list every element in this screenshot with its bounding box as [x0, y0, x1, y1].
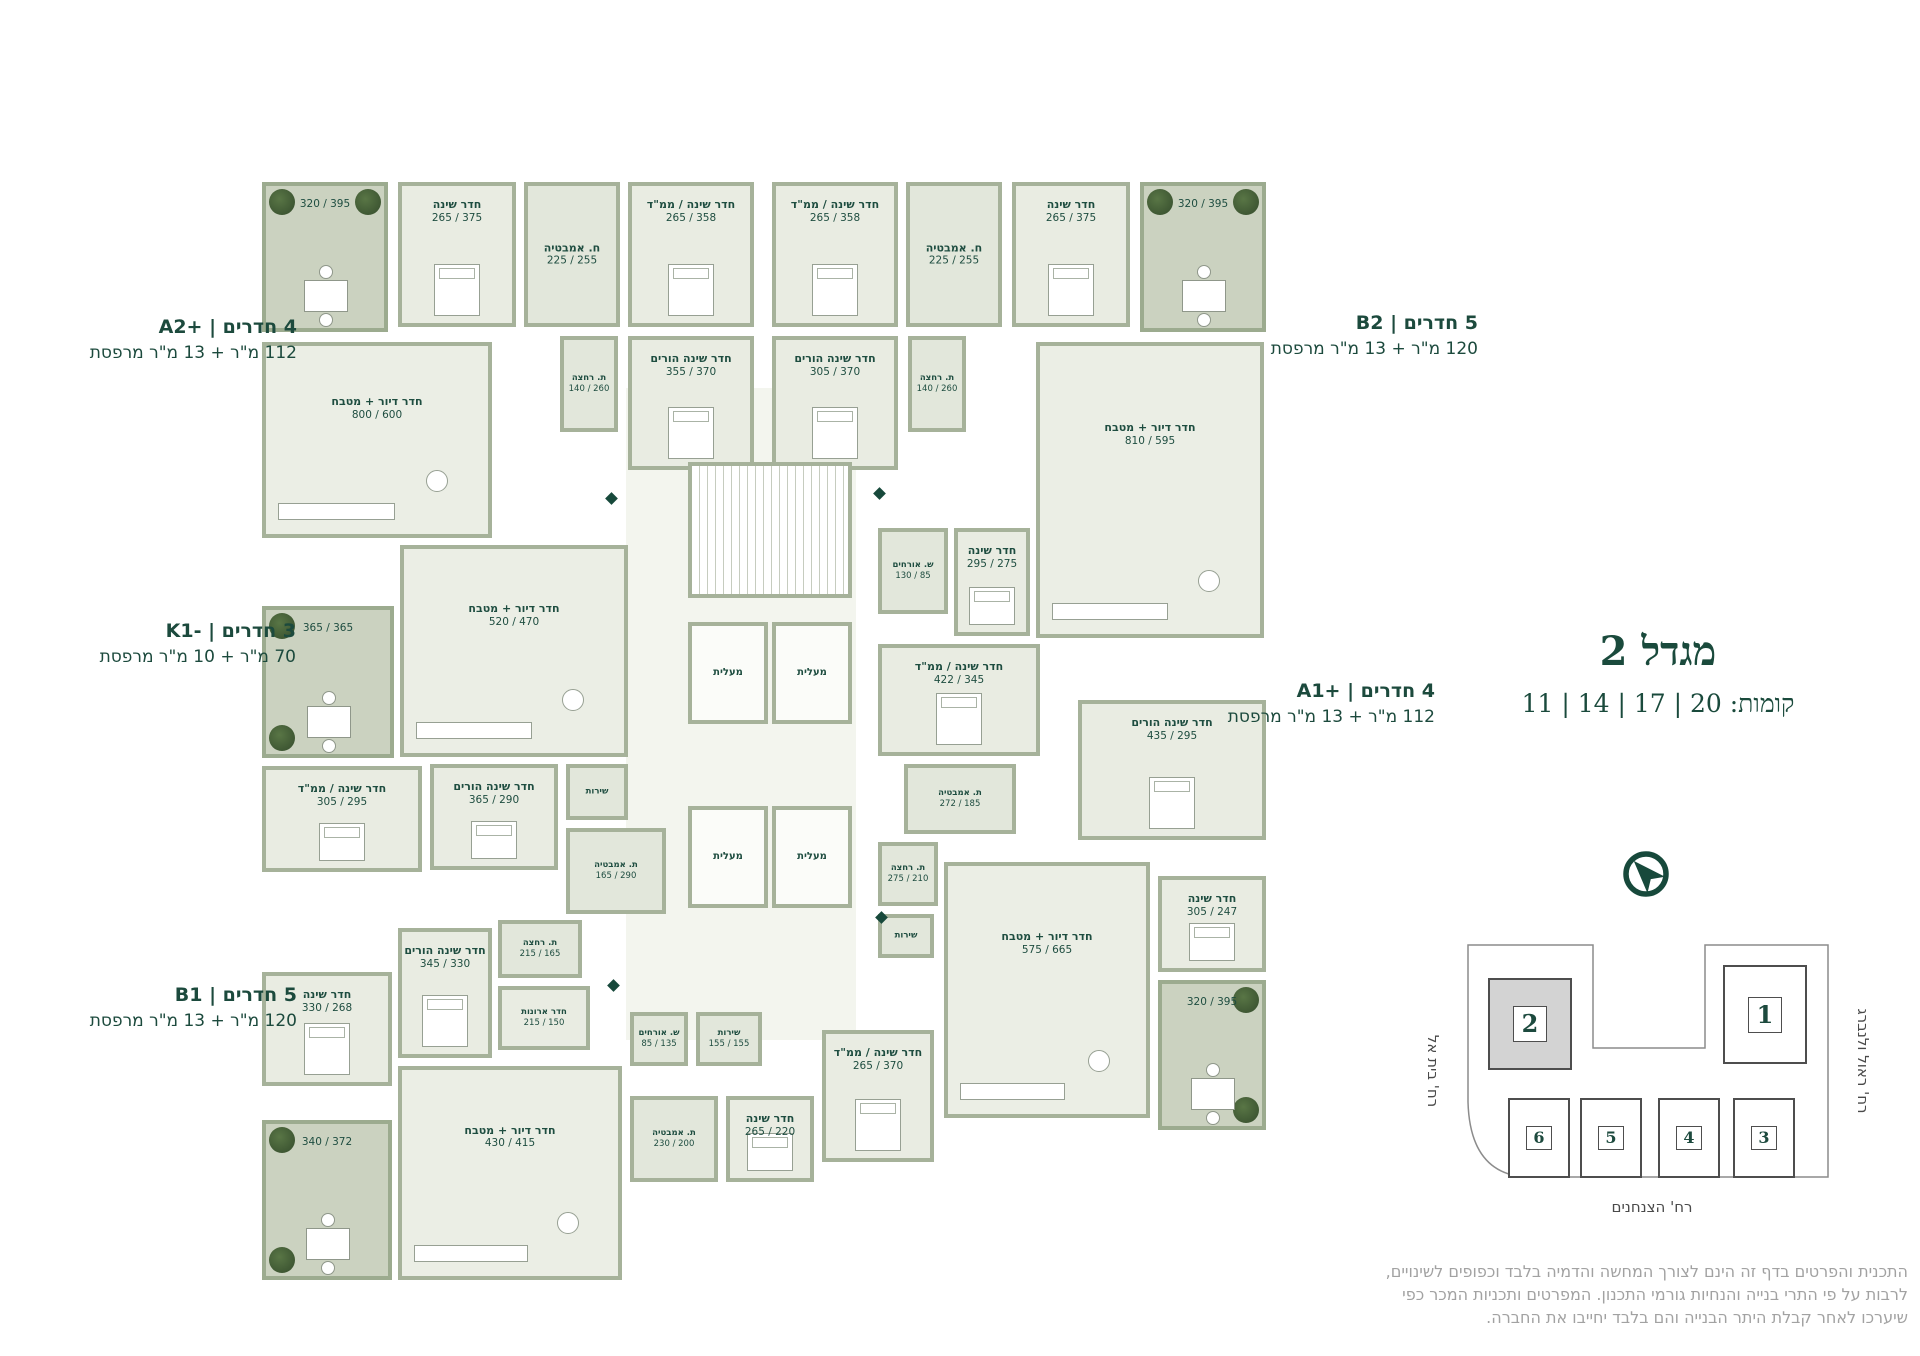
room-dims: 215 / 150	[502, 1018, 586, 1029]
building-number: 6	[1526, 1126, 1551, 1150]
building-number: 2	[1513, 1006, 1548, 1042]
apartment-area-label: 70 מ"ר + 10 מ"ר מרפסת	[100, 647, 296, 667]
room-name: ת. אמבטיה	[908, 788, 1012, 799]
room-elevator: מעלית	[688, 622, 768, 724]
room-bath: שירות	[878, 914, 934, 958]
room-name: מעלית	[692, 667, 764, 680]
room-name: ת. אמבטיה	[634, 1128, 714, 1139]
room-name: חדר שינה	[1162, 892, 1262, 906]
room-bedroom: חדר שינה305 / 247	[1158, 876, 1266, 972]
room-dims: 575 / 665	[948, 944, 1146, 958]
room-label: ש. אורחים85 / 135	[634, 1028, 684, 1050]
room-label: מעלית	[692, 667, 764, 680]
bed-icon	[1189, 923, 1235, 961]
tree-icon	[269, 725, 295, 751]
room-name: ח. אמבטיה	[528, 241, 616, 255]
coffee-table-icon	[1088, 1050, 1110, 1072]
room-bedroom: חדר שינה הורים355 / 370	[628, 336, 754, 470]
site-building-5: 5	[1580, 1098, 1642, 1178]
room-label: חדר שינה / ממ"ד422 / 345	[882, 660, 1036, 687]
room-label: שירות	[882, 931, 930, 942]
entrance-marker	[873, 487, 886, 500]
room-dims: 230 / 200	[634, 1139, 714, 1150]
apartment-area-label: 112 מ"ר + 13 מ"ר מרפסת	[90, 343, 297, 363]
room-label: ת. רחצה140 / 260	[564, 373, 614, 395]
room-name: חדר שינה	[958, 544, 1026, 558]
site-building-3: 3	[1733, 1098, 1795, 1178]
tree-icon	[1233, 189, 1259, 215]
street-label: רח' בית אל	[1424, 1006, 1442, 1136]
room-bath: ת. אמבטיה272 / 185	[904, 764, 1016, 834]
room-label: ח. אמבטיה225 / 255	[910, 241, 998, 268]
tree-icon	[1233, 987, 1259, 1013]
table-icon	[304, 280, 348, 312]
apartment-label-a2plus: 4 חדרים | A2+‎112 מ"ר + 13 מ"ר מרפסת	[90, 316, 297, 363]
room-name: חדר שינה / ממ"ד	[632, 198, 750, 212]
room-label: חדר דיור + מטבח800 / 600	[266, 395, 488, 422]
room-label: חדר שינה / ממ"ד305 / 295	[266, 782, 418, 809]
building-number: 5	[1598, 1126, 1623, 1150]
room-bedroom: חדר שינה / ממ"ד265 / 358	[772, 182, 898, 327]
table-icon	[307, 706, 351, 738]
site-building-6: 6	[1508, 1098, 1570, 1178]
bed-icon	[668, 264, 714, 316]
room-label: ח. אמבטיה225 / 255	[528, 241, 616, 268]
room-name: חדר שינה / ממ"ד	[776, 198, 894, 212]
disclaimer-line: התכנית והפרטים בדף זה הינם לצורך המחשה ו…	[1308, 1260, 1908, 1283]
room-name: ת. רחצה	[882, 863, 934, 874]
apartment-label-b2: 5 חדרים | B2120 מ"ר + 13 מ"ר מרפסת	[1271, 312, 1478, 359]
room-bedroom: חדר שינה265 / 375	[1012, 182, 1130, 327]
room-label: חדר שינה הורים345 / 330	[402, 944, 488, 971]
table-icon	[1182, 280, 1226, 312]
room-label: שירות155 / 155	[700, 1028, 758, 1050]
apartment-type-label: 5 חדרים | B2	[1271, 312, 1478, 334]
bed-icon	[1048, 264, 1094, 316]
apartment-area-label: 120 מ"ר + 13 מ"ר מרפסת	[90, 1011, 297, 1031]
room-name: חדר שינה הורים	[434, 780, 554, 794]
room-name: חדר שינה הורים	[776, 352, 894, 366]
room-bath: ת. רחצה275 / 210	[878, 842, 938, 906]
room-balcony: 320 / 395	[1158, 980, 1266, 1130]
room-label: ת. רחצה140 / 260	[912, 373, 962, 395]
room-dims: 130 / 85	[882, 571, 944, 582]
site-building-2: 2	[1488, 978, 1572, 1070]
room-bath: ש. אורחים130 / 85	[878, 528, 948, 614]
tree-icon	[1147, 189, 1173, 215]
room-dims: 275 / 210	[882, 874, 934, 885]
room-name: ש. אורחים	[634, 1028, 684, 1039]
room-name: חדר דיור + מטבח	[948, 930, 1146, 944]
room-name: ת. רחצה	[912, 373, 962, 384]
room-elevator: מעלית	[772, 806, 852, 908]
room-balcony: 340 / 372	[262, 1120, 392, 1280]
bed-icon	[434, 264, 480, 316]
room-label: חדר ארונות215 / 150	[502, 1007, 586, 1029]
room-label: ת. אמבטיה272 / 185	[908, 788, 1012, 810]
tree-icon	[1233, 1097, 1259, 1123]
room-label: חדר שינה / ממ"ד265 / 358	[776, 198, 894, 225]
floorplan-page: 320 / 395חדר שינה265 / 375ח. אמבטיה225 /…	[0, 0, 1920, 1356]
floors-list: קומות: 20 | 17 | 14 | 11	[1408, 689, 1908, 719]
room-bath: ש. אורחים85 / 135	[630, 1012, 688, 1066]
building-number: 4	[1676, 1126, 1701, 1150]
room-dims: 215 / 165	[502, 949, 578, 960]
room-dims: 265 / 370	[826, 1060, 930, 1074]
room-label: חדר שינה265 / 375	[1016, 198, 1126, 225]
room-label: חדר שינה הורים355 / 370	[632, 352, 750, 379]
apartment-area-label: 120 מ"ר + 13 מ"ר מרפסת	[1271, 339, 1478, 359]
room-bedroom: חדר שינה / ממ"ד422 / 345	[878, 644, 1040, 756]
title-block: מגדל 2 קומות: 20 | 17 | 14 | 11	[1408, 628, 1908, 719]
room-name: חדר דיור + מטבח	[402, 1124, 618, 1138]
apartment-label-k1minus: 3 חדרים | K1-‎70 מ"ר + 10 מ"ר מרפסת	[100, 620, 296, 667]
room-label: מעלית	[692, 851, 764, 864]
apartment-type-label: 4 חדרים | A1+‎	[1228, 680, 1435, 702]
room-dims: 800 / 600	[266, 409, 488, 423]
room-name: ת. אמבטיה	[570, 860, 662, 871]
room-label: חדר שינה295 / 275	[958, 544, 1026, 571]
room-name: חדר שינה / ממ"ד	[826, 1046, 930, 1060]
room-dims: 165 / 290	[570, 871, 662, 882]
room-bath: שירות	[566, 764, 628, 820]
bed-icon	[812, 407, 858, 459]
room-dims: 305 / 370	[776, 366, 894, 380]
room-name: שירות	[882, 931, 930, 942]
bed-icon	[471, 821, 517, 859]
disclaimer-line: שיערכו לאחר קבלת היתר הבנייה והם בלבד יח…	[1308, 1306, 1908, 1329]
room-name: ח. אמבטיה	[910, 241, 998, 255]
room-balcony: 320 / 395	[1140, 182, 1266, 332]
room-dims: 85 / 135	[634, 1039, 684, 1050]
sofa-icon	[278, 503, 395, 520]
room-label: שירות	[570, 787, 624, 798]
bed-icon	[936, 693, 982, 745]
room-name: חדר שינה	[402, 198, 512, 212]
sofa-icon	[960, 1083, 1065, 1100]
room-dims: 272 / 185	[908, 799, 1012, 810]
room-label: חדר שינה הורים305 / 370	[776, 352, 894, 379]
bed-icon	[319, 823, 365, 861]
room-bedroom: חדר שינה הורים305 / 370	[772, 336, 898, 470]
street-label: רח' הצנחנים	[1572, 1198, 1732, 1216]
room-name: חדר ארונות	[502, 1007, 586, 1018]
bed-icon	[304, 1023, 350, 1075]
room-bath: ת. רחצה140 / 260	[908, 336, 966, 432]
room-bedroom: חדר שינה265 / 375	[398, 182, 516, 327]
room-living: חדר דיור + מטבח575 / 665	[944, 862, 1150, 1118]
page-title: מגדל 2	[1408, 628, 1908, 675]
room-dims: 265 / 375	[402, 212, 512, 226]
table-icon	[306, 1228, 350, 1260]
room-bedroom: חדר שינה / ממ"ד265 / 370	[822, 1030, 934, 1162]
room-bedroom: חדר שינה הורים365 / 290	[430, 764, 558, 870]
sofa-icon	[1052, 603, 1168, 620]
room-bath: ת. אמבטיה230 / 200	[630, 1096, 718, 1182]
coffee-table-icon	[1198, 570, 1220, 592]
coffee-table-icon	[426, 470, 448, 492]
compass-icon	[1617, 845, 1675, 903]
table-icon	[1191, 1078, 1235, 1110]
tree-icon	[269, 189, 295, 215]
bed-icon	[812, 264, 858, 316]
room-label: חדר דיור + מטבח430 / 415	[402, 1124, 618, 1151]
room-bath: ת. רחצה140 / 260	[560, 336, 618, 432]
room-elevator: מעלית	[688, 806, 768, 908]
room-name: ש. אורחים	[882, 560, 944, 571]
floor-plan: 320 / 395חדר שינה265 / 375ח. אמבטיה225 /…	[258, 140, 1270, 1290]
room-name: חדר דיור + מטבח	[1040, 421, 1260, 435]
room-label: ש. אורחים130 / 85	[882, 560, 944, 582]
room-dims: 305 / 247	[1162, 906, 1262, 920]
room-elevator: מעלית	[772, 622, 852, 724]
apartment-type-label: 4 חדרים | A2+‎	[90, 316, 297, 338]
tree-icon	[269, 1127, 295, 1153]
apartment-label-a1plus: 4 חדרים | A1+‎112 מ"ר + 13 מ"ר מרפסת	[1228, 680, 1435, 727]
room-dims: 155 / 155	[700, 1039, 758, 1050]
sofa-icon	[416, 722, 532, 739]
room-bedroom: חדר שינה265 / 220	[726, 1096, 814, 1182]
room-label: ת. אמבטיה230 / 200	[634, 1128, 714, 1150]
room-dims: 140 / 260	[564, 384, 614, 395]
room-dims: 430 / 415	[402, 1137, 618, 1151]
room-name: חדר שינה הורים	[402, 944, 488, 958]
room-label: מעלית	[776, 851, 848, 864]
room-dims: 140 / 260	[912, 384, 962, 395]
room-dims: 265 / 375	[1016, 212, 1126, 226]
room-label: חדר דיור + מטבח810 / 595	[1040, 421, 1260, 448]
bed-icon	[422, 995, 468, 1047]
room-dims: 422 / 345	[882, 674, 1036, 688]
room-plain: חדר ארונות215 / 150	[498, 986, 590, 1050]
room-name: חדר דיור + מטבח	[404, 602, 624, 616]
room-name: ת. רחצה	[502, 938, 578, 949]
room-dims: 345 / 330	[402, 958, 488, 972]
room-living: חדר דיור + מטבח430 / 415	[398, 1066, 622, 1280]
room-dims: 365 / 290	[434, 794, 554, 808]
room-living: חדר דיור + מטבח800 / 600	[262, 342, 492, 538]
room-label: חדר שינה265 / 375	[402, 198, 512, 225]
street-label: רח' ראול ולנברג	[1854, 986, 1872, 1136]
bed-icon	[969, 587, 1015, 625]
room-label: מעלית	[776, 667, 848, 680]
room-label: חדר דיור + מטבח520 / 470	[404, 602, 624, 629]
room-bath: ת. רחצה215 / 165	[498, 920, 582, 978]
entrance-marker	[605, 492, 618, 505]
apartment-type-label: 5 חדרים | B1	[90, 984, 297, 1006]
room-name: חדר שינה / ממ"ד	[266, 782, 418, 796]
site-building-1: 1	[1723, 965, 1807, 1064]
room-name: חדר שינה	[1016, 198, 1126, 212]
room-dims: 305 / 295	[266, 796, 418, 810]
tree-icon	[269, 1247, 295, 1273]
room-bedroom: חדר שינה / ממ"ד265 / 358	[628, 182, 754, 327]
room-living: חדר דיור + מטבח810 / 595	[1036, 342, 1264, 638]
room-dims: 225 / 255	[910, 255, 998, 269]
room-name: חדר שינה / ממ"ד	[882, 660, 1036, 674]
room-name: מעלית	[692, 851, 764, 864]
apartment-type-label: 3 חדרים | K1-‎	[100, 620, 296, 642]
room-stairs	[688, 462, 852, 598]
coffee-table-icon	[557, 1212, 579, 1234]
room-dims: 265 / 358	[632, 212, 750, 226]
bed-icon	[747, 1133, 793, 1171]
room-bath: שירות155 / 155	[696, 1012, 762, 1066]
room-dims: 225 / 255	[528, 255, 616, 269]
room-name: שירות	[700, 1028, 758, 1039]
bed-icon	[1149, 777, 1195, 829]
disclaimer: התכנית והפרטים בדף זה הינם לצורך המחשה ו…	[1308, 1260, 1908, 1329]
room-label: חדר שינה / ממ"ד265 / 370	[826, 1046, 930, 1073]
room-label: ת. רחצה215 / 165	[502, 938, 578, 960]
room-label: ת. אמבטיה165 / 290	[570, 860, 662, 882]
room-label: חדר דיור + מטבח575 / 665	[948, 930, 1146, 957]
room-dims: 355 / 370	[632, 366, 750, 380]
room-name: חדר דיור + מטבח	[266, 395, 488, 409]
room-dims: 265 / 358	[776, 212, 894, 226]
room-balcony: 320 / 395	[262, 182, 388, 332]
room-living: חדר דיור + מטבח520 / 470	[400, 545, 628, 757]
site-building-4: 4	[1658, 1098, 1720, 1178]
room-dims: 435 / 295	[1082, 730, 1262, 744]
room-bath: ת. אמבטיה165 / 290	[566, 828, 666, 914]
building-number: 1	[1748, 997, 1783, 1033]
room-name: מעלית	[776, 851, 848, 864]
building-number: 3	[1751, 1126, 1776, 1150]
room-label: חדר שינה / ממ"ד265 / 358	[632, 198, 750, 225]
room-bath: ח. אמבטיה225 / 255	[906, 182, 1002, 327]
room-bath: ח. אמבטיה225 / 255	[524, 182, 620, 327]
tree-icon	[355, 189, 381, 215]
room-name: ת. רחצה	[564, 373, 614, 384]
room-name: חדר שינה הורים	[632, 352, 750, 366]
room-dims: 295 / 275	[958, 558, 1026, 572]
room-dims: 520 / 470	[404, 616, 624, 630]
apartment-label-b1: 5 חדרים | B1120 מ"ר + 13 מ"ר מרפסת	[90, 984, 297, 1031]
room-label: חדר שינה305 / 247	[1162, 892, 1262, 919]
room-label: ת. רחצה275 / 210	[882, 863, 934, 885]
room-name: חדר שינה	[730, 1112, 810, 1126]
room-name: שירות	[570, 787, 624, 798]
disclaimer-line: לרבות על פי התרי בנייה והנחיות גורמי התכ…	[1308, 1283, 1908, 1306]
bed-icon	[668, 407, 714, 459]
room-name: מעלית	[776, 667, 848, 680]
coffee-table-icon	[562, 689, 584, 711]
room-dims: 810 / 595	[1040, 435, 1260, 449]
room-bedroom: חדר שינה הורים345 / 330	[398, 928, 492, 1058]
room-label: חדר שינה הורים365 / 290	[434, 780, 554, 807]
room-bedroom: חדר שינה295 / 275	[954, 528, 1030, 636]
bed-icon	[855, 1099, 901, 1151]
sofa-icon	[414, 1245, 528, 1262]
apartment-area-label: 112 מ"ר + 13 מ"ר מרפסת	[1228, 707, 1435, 727]
entrance-marker	[607, 979, 620, 992]
room-bedroom: חדר שינה / ממ"ד305 / 295	[262, 766, 422, 872]
